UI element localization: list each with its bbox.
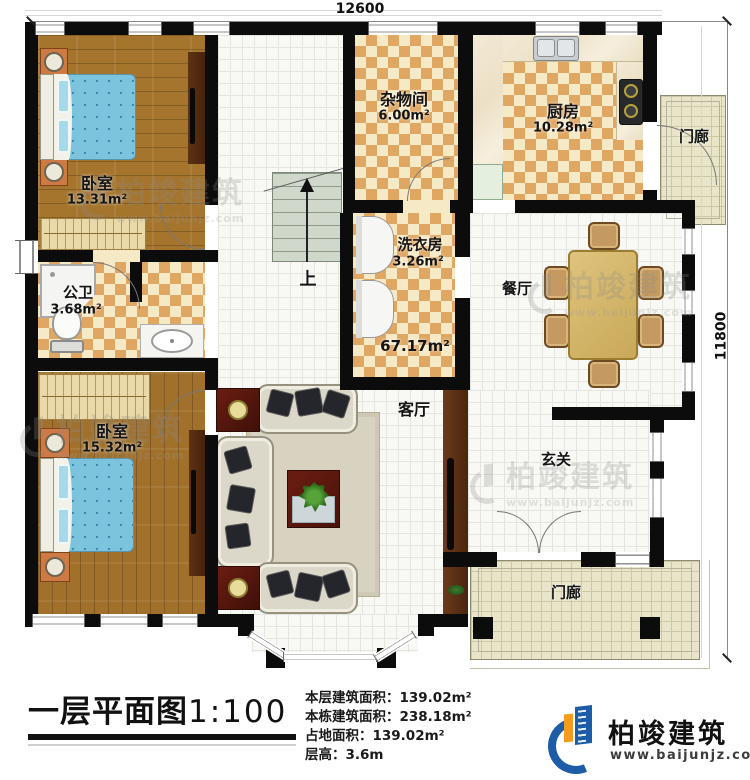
wall-bedroom-bottom-right: [205, 435, 218, 614]
porch-column: [473, 617, 493, 639]
bed-pillow: [57, 464, 70, 500]
room-label-bedroom-bottom: 卧室: [96, 418, 128, 442]
stove-burner: [624, 84, 638, 98]
stat-value: 139.02m²: [400, 690, 472, 706]
window-dining-right: [682, 362, 695, 392]
plant-small: [448, 585, 464, 595]
plan-title-text: 一层平面图: [28, 694, 188, 730]
room-label-porch-bottom: 门廊: [551, 582, 581, 603]
area-label-living-zone: 67.17m²: [380, 337, 450, 355]
window-bottom: [100, 614, 148, 627]
room-area-storage: 6.00m²: [378, 109, 429, 124]
porch-outline: [709, 560, 710, 669]
brand-website: www.baijunjz.com: [610, 748, 750, 763]
stat-label: 占地面积：: [305, 728, 373, 744]
shower-drain: [50, 272, 55, 277]
dining-table: [568, 250, 638, 360]
washing-machine-panel: [356, 216, 362, 274]
wall-dining-entry: [552, 407, 695, 420]
washing-machine-panel: [356, 280, 362, 338]
brand-name: 柏竣建筑: [608, 712, 728, 751]
window-top: [128, 22, 162, 35]
room-label-laundry: 洗衣房: [397, 234, 442, 255]
stat-building-area: 本栋建筑面积：238.18m²: [305, 705, 472, 725]
wall-entry-bottom: [581, 552, 615, 567]
nightstand: [40, 428, 70, 458]
staircase-arrow-line: [306, 190, 308, 262]
wardrobe: [40, 218, 146, 250]
stat-floor-height: 层高：3.6m: [305, 743, 383, 763]
stat-label: 本层建筑面积：: [305, 690, 400, 706]
room-area-kitchen: 10.28m²: [533, 121, 593, 136]
wall-kitchen-right: [643, 22, 657, 122]
bay-window-bottom: [283, 652, 377, 662]
window-top: [35, 22, 65, 35]
window-entry-bottom: [615, 552, 650, 567]
sofa-pillow: [294, 387, 324, 417]
stairs-up-label: 上: [300, 265, 317, 290]
lamp-icon: [44, 52, 64, 72]
plan-title: 一层平面图1:100: [28, 686, 287, 731]
dining-chair: [638, 266, 664, 300]
wall-kitchen-right: [643, 190, 657, 213]
wardrobe-rail: [42, 396, 146, 397]
bed-headboard: [40, 458, 54, 552]
porch-outline: [470, 668, 710, 669]
title-underline-thin: [28, 744, 296, 746]
staircase-arrow-head: [300, 178, 314, 192]
window-top-kitchen: [535, 22, 580, 35]
window-top: [605, 22, 638, 35]
dining-chair: [544, 266, 570, 300]
room-area-bathroom: 3.68m²: [50, 303, 101, 318]
end-table: [216, 388, 260, 432]
wall-living-dining: [357, 377, 455, 390]
room-label-kitchen: 厨房: [547, 98, 579, 122]
window-dining-right: [682, 290, 695, 315]
plan-scale: 1:100: [188, 694, 287, 730]
door-gap-storage: [403, 200, 450, 213]
lamp-icon: [228, 400, 248, 420]
window-bottom: [162, 614, 198, 627]
nightstand: [40, 48, 68, 76]
dining-chair: [638, 314, 664, 348]
tv-bedroom-bottom: [191, 470, 196, 534]
sofa-pillow: [224, 522, 251, 549]
fridge: [471, 164, 503, 200]
bed-headboard: [40, 74, 54, 160]
dining-chair: [544, 314, 570, 348]
wall-bedroom-top-right: [205, 35, 218, 205]
stat-label: 本栋建筑面积：: [305, 709, 400, 725]
window-entry-right: [650, 432, 664, 462]
window-top: [193, 22, 230, 35]
dining-chair: [588, 360, 620, 388]
room-label-bathroom: 公卫: [63, 282, 93, 303]
lamp-icon: [44, 162, 64, 182]
room-label-living: 客厅: [398, 396, 430, 420]
wall-bedroom-bottom-right: [205, 371, 218, 390]
porch-bottom-inner-border: [478, 568, 692, 652]
wall-entry-bottom: [443, 552, 497, 567]
stat-value: 139.02m²: [373, 728, 445, 744]
lamp-icon: [45, 433, 65, 453]
wall-laundry-left: [340, 213, 353, 390]
wall-stub: [443, 377, 468, 390]
nightstand: [40, 552, 70, 582]
nightstand: [40, 158, 68, 186]
stat-label: 层高：: [305, 747, 346, 763]
dimension-top: 12600: [330, 1, 390, 17]
stat-value: 238.18m²: [400, 709, 472, 725]
window-dining-right: [682, 228, 695, 255]
wardrobe-rail: [44, 233, 142, 234]
wall-bathroom-bottom: [25, 358, 218, 371]
wall-storage-left: [343, 35, 355, 213]
window-bottom: [32, 614, 85, 627]
kitchen-sink-basin: [557, 39, 575, 57]
sink-drain: [170, 339, 174, 343]
stat-footprint-area: 占地面积：139.02m²: [305, 724, 445, 744]
title-underline-thick: [28, 734, 296, 740]
kitchen-sink-basin: [537, 39, 555, 57]
room-area-bedroom-bottom: 15.32m²: [82, 441, 142, 456]
room-area-bedroom-top: 13.31m²: [67, 193, 127, 208]
lamp-icon: [45, 557, 65, 577]
window-top-storage: [368, 22, 438, 35]
brand-logo-icon: [548, 702, 604, 766]
room-label-bedroom-top: 卧室: [81, 170, 113, 194]
wall-laundry-right: [455, 213, 470, 257]
porch-column: [640, 617, 660, 639]
tv-living: [447, 458, 454, 550]
wardrobe: [38, 374, 150, 420]
wall-storage-right: [458, 35, 473, 213]
stat-value: 3.6m: [346, 747, 384, 763]
wall-stub: [443, 614, 468, 627]
dimension-right: 11800: [713, 312, 729, 361]
wall-kitchen-bottom: [515, 200, 695, 213]
room-label-entry: 玄关: [541, 449, 571, 470]
stat-floor-area: 本层建筑面积：139.02m²: [305, 686, 472, 706]
bed-pillow: [57, 79, 70, 113]
room-label-dining: 餐厅: [502, 278, 532, 299]
tv-bedroom-top: [190, 88, 195, 144]
bay-corner: [418, 614, 434, 636]
lamp-icon: [228, 578, 248, 598]
window-bathroom-left: [15, 240, 38, 274]
bed-pillow: [57, 508, 70, 544]
end-table: [216, 566, 260, 610]
sofa-pillow: [294, 572, 325, 603]
room-area-laundry: 3.26m²: [392, 255, 443, 270]
floor-plan: 12600 11800: [0, 0, 750, 780]
dining-chair: [588, 222, 620, 250]
bed-pillow: [57, 119, 70, 153]
door-gap-bathroom: [93, 250, 140, 262]
window-entry-right: [650, 478, 664, 518]
room-label-storage: 杂物间: [380, 86, 428, 110]
stove-burner: [624, 104, 638, 118]
room-label-porch-top: 门廊: [679, 126, 709, 147]
toilet-tank: [50, 340, 84, 353]
wall-left: [25, 35, 38, 627]
sofa-pillow: [226, 484, 256, 514]
